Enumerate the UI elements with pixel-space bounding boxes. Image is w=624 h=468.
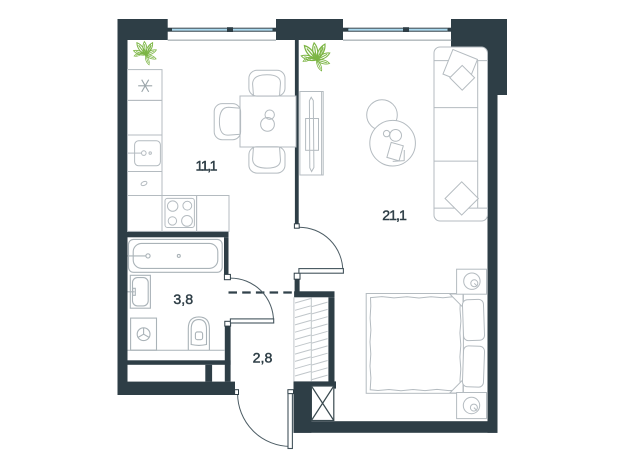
svg-text:2,8: 2,8 [253,351,273,367]
svg-text:11,1: 11,1 [196,159,218,175]
svg-text:3,8: 3,8 [173,292,193,308]
svg-text:21,1: 21,1 [382,208,407,224]
